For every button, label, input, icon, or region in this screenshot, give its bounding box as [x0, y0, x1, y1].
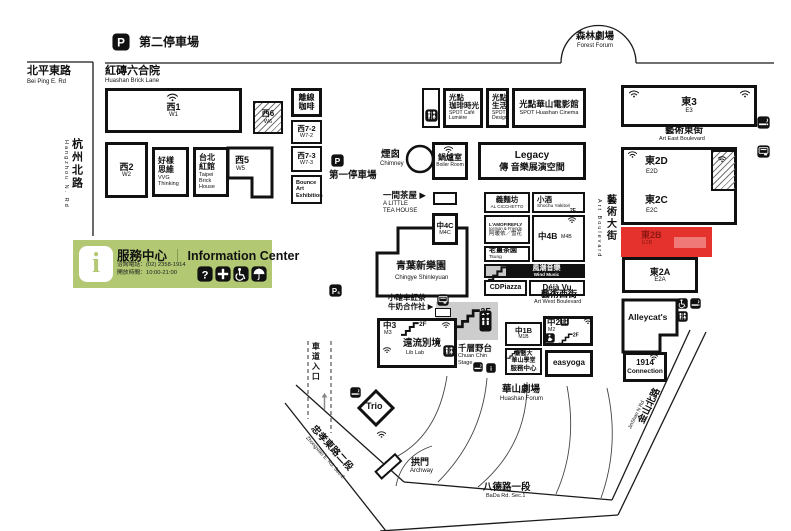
building-trio: [359, 391, 393, 425]
deck-area: [436, 302, 498, 318]
info-center-hours: 開放時間：10:00-21:00: [117, 270, 186, 278]
building-chingye-shinleyuan: [377, 228, 467, 296]
umbrella-icon: [251, 266, 267, 282]
info-center-details: 洽詢電話：(02) 2358-1914 開放時間：10:00-21:00: [117, 262, 186, 278]
huashan-park-map: 西1W1西6W6西2W2好樣思維VVGThinking台北紅館TaipeiBri…: [0, 0, 791, 531]
building-alleycats: [623, 300, 677, 352]
info-icon: i: [79, 246, 113, 282]
wheelchair-icon: [233, 266, 249, 282]
info-center-title-en: Information Center: [188, 249, 300, 263]
first-aid-icon: [215, 266, 231, 282]
svg-text:?: ?: [202, 269, 209, 281]
info-center-phone: 洽詢電話：(02) 2358-1914: [117, 262, 186, 270]
information-center-banner: i 服務中心｜Information Center 洽詢電話：(02) 2358…: [73, 240, 272, 288]
vehicle-lane-dashes: [308, 341, 331, 433]
archway-shape: [376, 454, 401, 478]
building-w5: [228, 148, 272, 197]
question-icon: ?: [197, 266, 213, 282]
deck-area: [457, 318, 498, 340]
lawn-paths: [385, 376, 612, 498]
chimney-circle: [407, 146, 433, 172]
info-center-service-icons: ?: [197, 266, 267, 282]
info-center-title-zh: 服務中心: [117, 249, 167, 263]
forest-forum-arc: [561, 26, 636, 64]
